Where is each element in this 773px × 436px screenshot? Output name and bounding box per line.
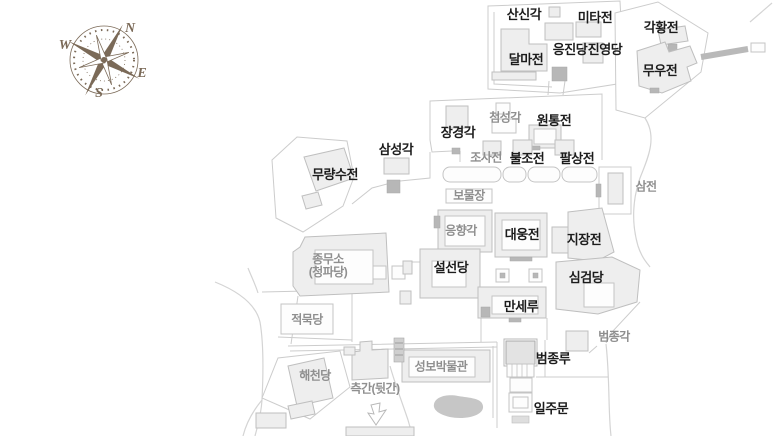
building-small-east-of-daeungjeon (552, 227, 568, 253)
building-samjeon (608, 173, 623, 204)
building-jinyeongdang (583, 43, 603, 63)
compass-rose-icon: N E S W (50, 6, 158, 114)
arcade (503, 167, 526, 182)
arcade (562, 167, 597, 182)
building-west-wing (492, 72, 536, 80)
building-jeokmukdang (281, 304, 333, 334)
gate-sansingak-group (552, 67, 567, 81)
arcade (443, 167, 501, 182)
building-bomuljang (446, 189, 492, 203)
building-beomjongnu (506, 341, 535, 364)
compass-w: W (59, 38, 73, 53)
building-josajeon (483, 141, 501, 155)
compass-s: S (95, 86, 103, 101)
stairs-gate (394, 338, 404, 362)
building-small-east (751, 43, 765, 52)
compass-e: E (136, 66, 146, 81)
building-mitajeon (576, 22, 601, 37)
building-samseonggak (384, 158, 409, 174)
stairs (507, 364, 534, 377)
building-beomjonggak (566, 331, 588, 351)
building-eungjindang (545, 23, 573, 40)
building-buljojeon (513, 140, 532, 155)
building-cheukgan (352, 341, 388, 380)
compass-n: N (124, 21, 136, 36)
arrow-down-icon (368, 403, 386, 425)
map-drawing: N E S W (0, 0, 773, 436)
building-jijangjeon (568, 208, 614, 261)
gate-samseonggak (387, 180, 400, 193)
building-palsangjeon (555, 140, 574, 155)
building-janggyeonggak (446, 106, 468, 128)
buildings-office (281, 233, 405, 334)
building-sansingak (549, 7, 560, 17)
arcade (528, 167, 560, 182)
building-gakhwangjeon (658, 26, 688, 45)
temple-map: N E S W 산신각 미타전 각황전 달마전 응진당 진영당 무우전 장경각 … (0, 0, 773, 436)
buildings-janggyeonggak-group (443, 103, 597, 182)
building-partial-south (346, 427, 414, 436)
mountain-path (701, 49, 748, 57)
pond (434, 395, 483, 418)
buildings-west (302, 148, 409, 209)
buildings-south (256, 331, 597, 436)
building-cheomseonggak (492, 119, 516, 133)
